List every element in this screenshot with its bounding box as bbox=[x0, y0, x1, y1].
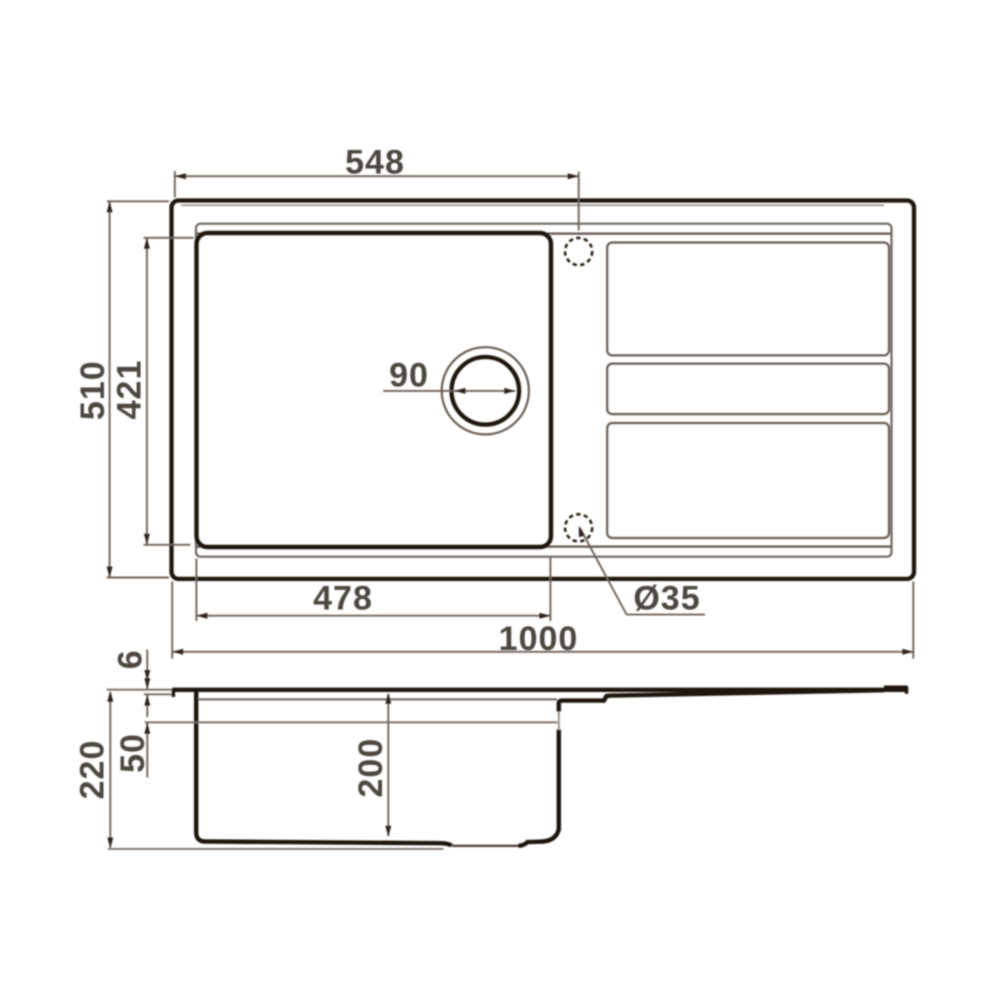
svg-text:Ø35: Ø35 bbox=[633, 579, 700, 617]
svg-text:50: 50 bbox=[114, 733, 152, 773]
svg-text:548: 548 bbox=[345, 144, 405, 182]
svg-text:478: 478 bbox=[313, 580, 373, 618]
svg-text:200: 200 bbox=[352, 738, 390, 798]
svg-text:220: 220 bbox=[74, 740, 112, 800]
svg-text:421: 421 bbox=[110, 360, 148, 420]
svg-text:6: 6 bbox=[111, 649, 149, 669]
svg-text:90: 90 bbox=[389, 357, 429, 395]
svg-text:1000: 1000 bbox=[499, 620, 579, 658]
svg-text:510: 510 bbox=[74, 360, 112, 420]
